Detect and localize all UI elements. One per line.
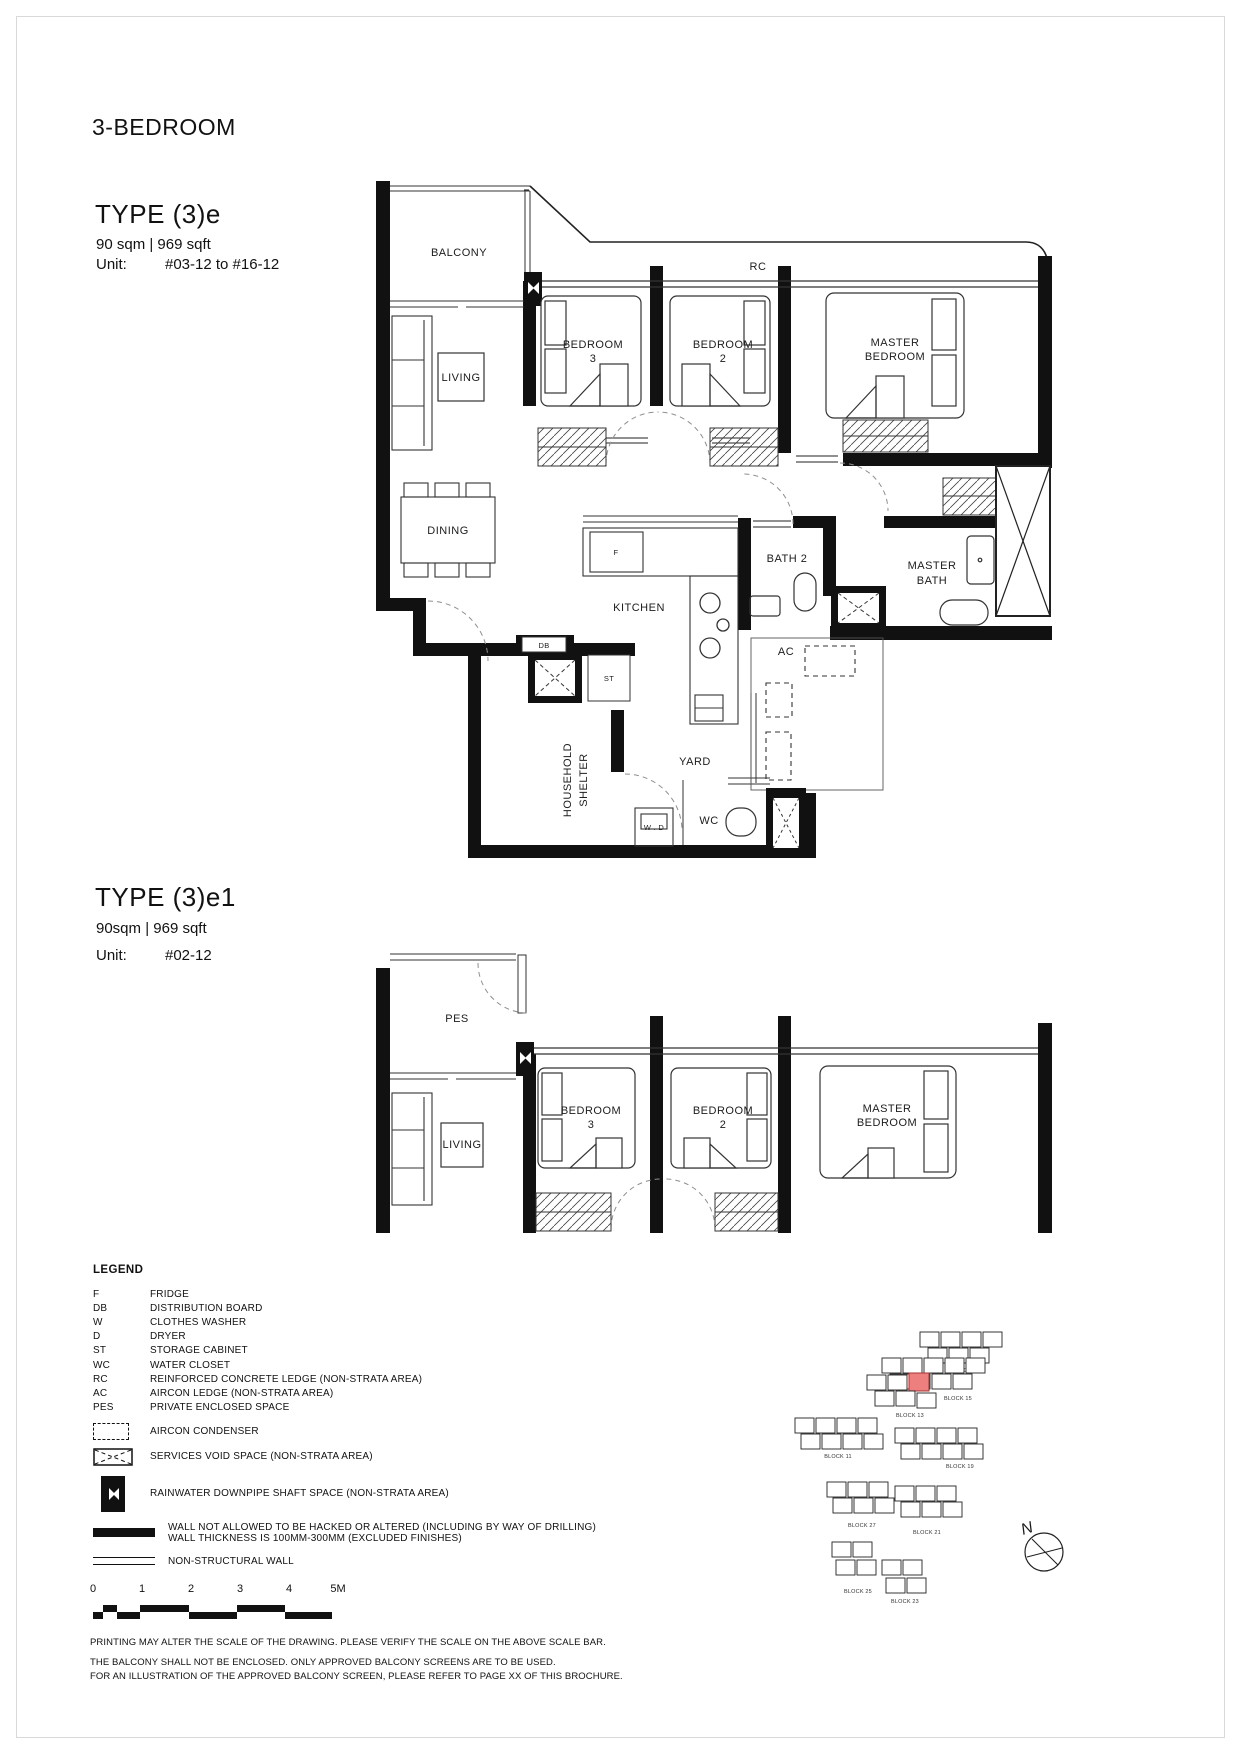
svg-text:BLOCK 11: BLOCK 11 <box>824 1454 851 1460</box>
svg-text:BLOCK 25: BLOCK 25 <box>844 1589 872 1595</box>
svg-text:BATH: BATH <box>917 575 948 587</box>
room-label-master-bath: MASTER <box>908 560 957 572</box>
legend-row-st: STSTORAGE CABINET <box>93 1344 733 1358</box>
wardrobe-icons <box>538 420 996 515</box>
scale-tick-1: 1 <box>139 1583 145 1595</box>
svg-text:BEDROOM: BEDROOM <box>857 1117 917 1129</box>
room-label-pes: PES <box>445 1013 469 1025</box>
type-e-area: 90 sqm | 969 sqft <box>96 236 211 253</box>
sitemap-block-27: BLOCK 27 <box>827 1482 894 1529</box>
sofa-icon <box>392 1093 432 1205</box>
svg-text:BLOCK 15: BLOCK 15 <box>944 1396 972 1402</box>
floorplan-type-3e1: PES LIVING BEDROOM 3 BEDROOM 2 MASTER BE… <box>338 938 1078 1248</box>
room-label-shelter: SHELTER <box>578 753 590 806</box>
services-void-icon <box>93 1448 133 1466</box>
roof-boundary-line <box>530 186 1048 270</box>
sitemap-block-19: BLOCK 19 <box>895 1428 983 1470</box>
legend-row-non-structural: NON-STRUCTURAL WALL <box>93 1556 733 1567</box>
room-label-kitchen: KITCHEN <box>613 602 665 614</box>
label-st: ST <box>604 674 614 683</box>
scale-tick-2: 2 <box>188 1583 194 1595</box>
toilet-icon <box>940 600 988 625</box>
sofa-icon <box>392 316 432 450</box>
svg-text:BEDROOM: BEDROOM <box>865 351 925 363</box>
highlighted-unit <box>909 1373 929 1391</box>
sitemap-block-23: BLOCK 23 <box>882 1560 926 1605</box>
legend-title: LEGEND <box>93 1264 733 1276</box>
sitemap-block-13: BLOCK 13 <box>867 1373 936 1419</box>
structural-walls <box>376 181 1052 858</box>
stove-icon <box>700 593 729 658</box>
svg-text:2: 2 <box>720 353 727 365</box>
legend-row-pes: PESPRIVATE ENCLOSED SPACE <box>93 1401 733 1415</box>
legend-row-f: FFRIDGE <box>93 1287 733 1301</box>
shaft-void-box <box>996 466 1050 616</box>
scale-tick-3: 3 <box>237 1583 243 1595</box>
bed-icon-bedroom3 <box>538 1068 635 1168</box>
room-label-bedroom2: BEDROOM <box>693 1105 753 1117</box>
room-label-ac: AC <box>778 646 794 658</box>
rainwater-downpipe-icon <box>101 1476 125 1512</box>
room-label-wc: WC <box>699 815 718 827</box>
room-label-master-bedroom: MASTER <box>863 1103 912 1115</box>
label-fridge: F <box>614 548 619 557</box>
bath2-fixtures <box>750 573 816 616</box>
svg-text:BLOCK 21: BLOCK 21 <box>913 1530 941 1536</box>
legend-row-rainwater: RAINWATER DOWNPIPE SHAFT SPACE (NON-STRA… <box>93 1476 733 1512</box>
legend-row-db: DBDISTRIBUTION BOARD <box>93 1301 733 1315</box>
type-e-unit-value: #03-12 to #16-12 <box>165 256 279 273</box>
toilet-icon <box>794 573 816 611</box>
room-label-rc: RC <box>750 261 767 273</box>
legend-row-ac: ACAIRCON LEDGE (NON-STRATA AREA) <box>93 1386 733 1400</box>
svg-text:3: 3 <box>588 1119 595 1131</box>
brochure-page: 3-BEDROOM TYPE (3)e 90 sqm | 969 sqft Un… <box>0 0 1241 1754</box>
type-e1-area: 90sqm | 969 sqft <box>96 920 207 937</box>
north-compass-icon: N <box>1019 1519 1063 1571</box>
masterbath-fixtures <box>940 536 994 625</box>
svg-text:2: 2 <box>720 1119 727 1131</box>
aircon-condenser-icon <box>93 1423 129 1440</box>
type-e1-unit-label: Unit: <box>96 947 127 964</box>
bed-icon-bedroom3 <box>541 296 641 406</box>
scale-tick-0: 0 <box>90 1583 96 1595</box>
legend-row-aircon-condenser: AIRCON CONDENSER <box>93 1423 733 1440</box>
legend: LEGEND FFRIDGE DBDISTRIBUTION BOARD WCLO… <box>93 1264 733 1567</box>
svg-text:BLOCK 27: BLOCK 27 <box>848 1523 876 1529</box>
label-db: DB <box>538 641 549 650</box>
legend-row-rc: RCREINFORCED CONCRETE LEDGE (NON-STRATA … <box>93 1372 733 1386</box>
room-label-living: LIVING <box>442 1139 481 1151</box>
floorplan-type-3e: BALCONY LIVING DINING RC BEDROOM 3 BEDRO… <box>338 148 1078 868</box>
room-label-balcony: BALCONY <box>431 247 487 259</box>
non-structural-lines <box>390 186 770 845</box>
type-e-title: TYPE (3)e <box>95 199 221 230</box>
door-swing-arcs <box>428 412 888 831</box>
legend-row-wc: WCWATER CLOSET <box>93 1358 733 1372</box>
legend-row-w: WCLOTHES WASHER <box>93 1315 733 1329</box>
scale-bar: 0 1 2 3 4 5M <box>86 1583 406 1633</box>
legend-row-d: DDRYER <box>93 1330 733 1344</box>
room-label-bedroom3: BEDROOM <box>561 1105 621 1117</box>
bed-icon-bedroom2 <box>670 296 770 406</box>
svg-text:3: 3 <box>590 353 597 365</box>
scale-tick-4: 4 <box>286 1583 292 1595</box>
room-label-bedroom3: BEDROOM <box>563 339 623 351</box>
type-e-unit-label: Unit: <box>96 256 127 273</box>
sink-icon <box>750 596 780 616</box>
non-structural-wall-icon <box>93 1557 155 1565</box>
room-label-yard: YARD <box>679 756 711 768</box>
ac-ledge-outline <box>751 638 883 790</box>
north-label: N <box>1019 1519 1036 1539</box>
room-label-dining: DINING <box>427 525 469 537</box>
room-label-living: LIVING <box>441 372 480 384</box>
legend-row-structural-wall: WALL NOT ALLOWED TO BE HACKED OR ALTERED… <box>93 1522 733 1544</box>
structural-wall-icon <box>93 1528 155 1537</box>
room-label-household: HOUSEHOLD <box>562 743 574 817</box>
sink-icon <box>967 536 994 584</box>
room-label-bath2: BATH 2 <box>767 553 808 565</box>
scale-tick-5: 5M <box>330 1583 345 1595</box>
sitemap-block-11: BLOCK 11 <box>795 1418 883 1460</box>
footnote-scale: PRINTING MAY ALTER THE SCALE OF THE DRAW… <box>90 1637 606 1648</box>
sitemap-block-21: BLOCK 21 <box>895 1486 962 1536</box>
svg-text:BLOCK 19: BLOCK 19 <box>946 1464 974 1470</box>
legend-row-services-void: SERVICES VOID SPACE (NON-STRATA AREA) <box>93 1448 733 1466</box>
svg-text:BLOCK 13: BLOCK 13 <box>896 1413 924 1419</box>
site-map: BLOCK 17 BLOCK 15 BLOCK 13 BLOCK 11 BLOC… <box>770 1310 1170 1630</box>
room-label-bedroom2: BEDROOM <box>693 339 753 351</box>
page-title: 3-BEDROOM <box>92 114 236 141</box>
wc-toilet-icon <box>726 808 756 836</box>
footnote-balcony-2: FOR AN ILLUSTRATION OF THE APPROVED BALC… <box>90 1671 623 1682</box>
sitemap-block-25: BLOCK 25 <box>832 1542 876 1595</box>
room-label-master-bedroom: MASTER <box>871 337 920 349</box>
type-e1-unit-value: #02-12 <box>165 947 212 964</box>
label-wd: W . D <box>644 823 665 832</box>
aircon-condenser-boxes <box>766 646 855 780</box>
footnote-balcony-1: THE BALCONY SHALL NOT BE ENCLOSED. ONLY … <box>90 1657 556 1668</box>
svg-text:BLOCK 23: BLOCK 23 <box>891 1599 919 1605</box>
type-e1-title: TYPE (3)e1 <box>95 882 236 913</box>
bed-icon-bedroom2 <box>671 1068 771 1168</box>
